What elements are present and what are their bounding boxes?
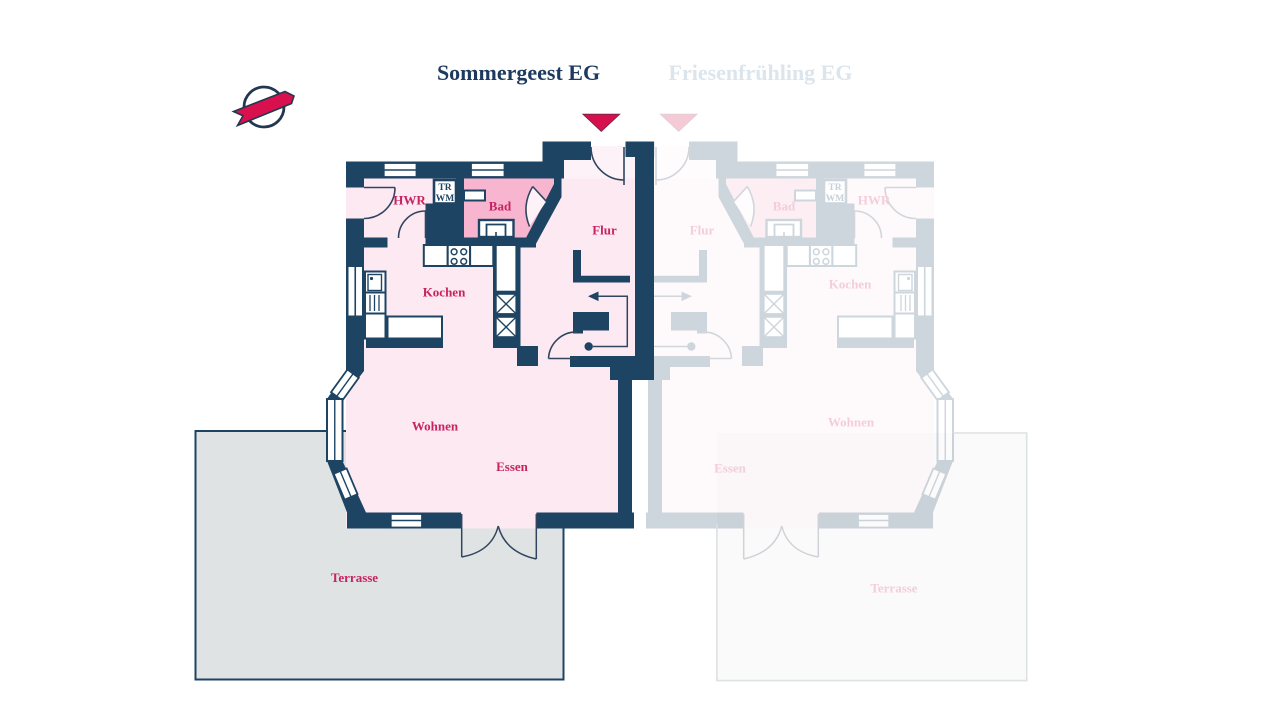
svg-text:HWR: HWR (393, 193, 426, 208)
svg-text:Essen: Essen (714, 461, 747, 476)
svg-text:Flur: Flur (592, 223, 617, 238)
svg-text:Essen: Essen (496, 459, 529, 474)
svg-text:WM: WM (436, 194, 455, 204)
svg-text:TR: TR (438, 183, 451, 193)
svg-text:Terrasse: Terrasse (870, 581, 917, 596)
svg-text:Sommergeest EG: Sommergeest EG (437, 60, 600, 85)
svg-text:HWR: HWR (858, 193, 891, 208)
svg-text:Bad: Bad (489, 199, 512, 214)
svg-text:Kochen: Kochen (423, 285, 466, 300)
svg-text:Wohnen: Wohnen (412, 419, 459, 434)
svg-text:Terrasse: Terrasse (331, 570, 378, 585)
svg-text:Kochen: Kochen (829, 277, 872, 292)
svg-text:TR: TR (828, 183, 841, 193)
svg-text:Flur: Flur (690, 223, 715, 238)
svg-text:Bad: Bad (773, 199, 796, 214)
svg-text:WM: WM (826, 194, 845, 204)
svg-text:Friesenfrühling EG: Friesenfrühling EG (669, 60, 853, 85)
svg-text:Wohnen: Wohnen (828, 415, 875, 430)
